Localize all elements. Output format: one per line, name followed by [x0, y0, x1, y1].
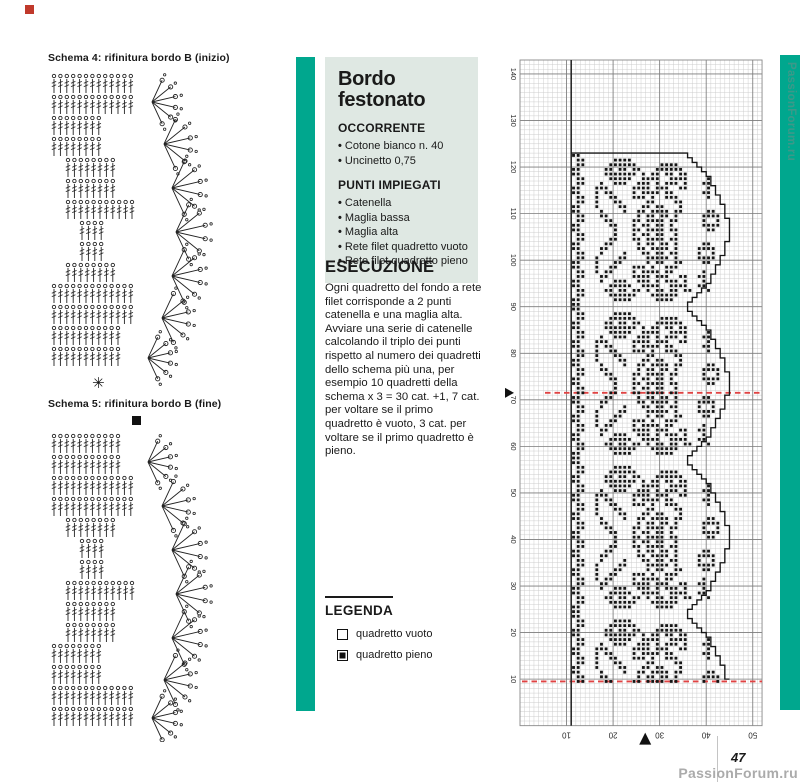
svg-text:70: 70	[509, 396, 518, 404]
svg-text:10: 10	[562, 731, 571, 740]
filet-chart: 1020304050607080901001101201301401020304…	[492, 52, 780, 764]
empty-square-icon	[337, 629, 348, 640]
svg-text:20: 20	[509, 628, 518, 636]
svg-text:80: 80	[509, 349, 518, 357]
filled-square-icon	[337, 650, 348, 661]
instructions-block: ESECUZIONE Ogni quadretto del fondo a re…	[325, 258, 483, 459]
teal-divider-stripe	[296, 57, 315, 711]
svg-text:40: 40	[509, 535, 518, 543]
schema5-caption: Schema 5: rifinitura bordo B (fine)	[48, 398, 221, 410]
materials-box: Bordo festonato OCCORRENTE Cotone bianco…	[325, 57, 478, 283]
legend-item-filled: quadretto pieno	[337, 649, 485, 661]
list-item: Maglia bassa	[338, 211, 468, 226]
legend-label: quadretto pieno	[356, 649, 432, 661]
page-number: 47	[731, 750, 745, 765]
watermark-top: PassionForum.ru	[785, 62, 797, 161]
svg-text:10: 10	[509, 675, 518, 683]
svg-text:20: 20	[608, 731, 617, 740]
schema5-crochet-diagram	[36, 412, 251, 742]
svg-text:30: 30	[509, 582, 518, 590]
section-heading-esecuzione: ESECUZIONE	[325, 258, 483, 277]
list-item: Uncinetto 0,75	[338, 154, 468, 169]
svg-text:100: 100	[509, 254, 518, 267]
legend-block: LEGENDA quadretto vuoto quadretto pieno	[325, 596, 485, 670]
svg-text:130: 130	[509, 114, 518, 127]
svg-text:50: 50	[509, 489, 518, 497]
materials-list: Cotone bianco n. 40 Uncinetto 0,75	[338, 139, 468, 168]
svg-text:30: 30	[655, 731, 664, 740]
svg-text:✳: ✳	[92, 374, 105, 392]
list-item: Rete filet quadretto vuoto	[338, 240, 468, 255]
svg-text:50: 50	[748, 731, 757, 740]
svg-text:90: 90	[509, 303, 518, 311]
legend-label: quadretto vuoto	[356, 628, 432, 640]
list-item: Catenella	[338, 196, 468, 211]
legend-item-empty: quadretto vuoto	[337, 628, 485, 640]
list-item: Cotone bianco n. 40	[338, 139, 468, 154]
section-heading-occorrente: OCCORRENTE	[338, 121, 468, 135]
svg-text:60: 60	[509, 442, 518, 450]
legend-heading: LEGENDA	[325, 596, 393, 618]
svg-text:110: 110	[509, 208, 518, 220]
svg-text:140: 140	[509, 68, 518, 81]
article-title: Bordo festonato	[338, 69, 468, 111]
section-heading-punti: PUNTI IMPIEGATI	[338, 178, 468, 192]
red-corner-mark	[25, 5, 34, 14]
watermark-bottom: PassionForum.ru	[678, 765, 798, 781]
svg-text:120: 120	[509, 161, 518, 174]
schema4-crochet-diagram: ✳	[36, 66, 251, 396]
schema4-caption: Schema 4: rifinitura bordo B (inizio)	[48, 52, 230, 64]
magazine-page: Schema 4: rifinitura bordo B (inizio) ✳ …	[0, 0, 800, 782]
filet-chart-svg: 1020304050607080901001101201301401020304…	[492, 52, 780, 764]
svg-text:40: 40	[701, 731, 710, 740]
list-item: Maglia alta	[338, 225, 468, 240]
instructions-text: Ogni quadretto del fondo a rete filet co…	[325, 282, 483, 459]
